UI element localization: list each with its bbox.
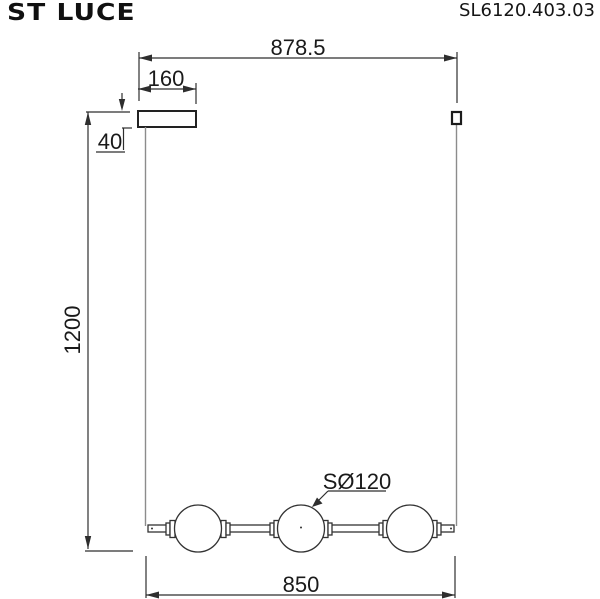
glass-globe-right: [387, 505, 434, 552]
spec-sheet-page: ST LUCE SL6120.403.03 878.5 160: [0, 0, 600, 599]
ceiling-attachment-right: [452, 112, 461, 124]
glass-globe-left: [175, 505, 222, 552]
brand-logo: ST LUCE: [7, 0, 136, 26]
bar-end-dot-left: [151, 528, 153, 530]
dim-label-canopy-width: 160: [148, 66, 185, 91]
dimension-drawing: 878.5 160 40 1200: [0, 0, 600, 599]
dim-label-bar-length: 850: [283, 572, 320, 597]
dim-label-total-width: 878.5: [270, 35, 325, 60]
ceiling-canopy: [138, 111, 196, 127]
dim-label-canopy-height: 40: [98, 129, 122, 154]
dim-label-shade-diameter: SØ120: [323, 469, 392, 494]
dim-label-total-height: 1200: [60, 306, 85, 355]
model-number: SL6120.403.03: [459, 0, 595, 21]
globe-center-dot: [300, 527, 302, 529]
bar-end-dot-right: [450, 528, 452, 530]
dim-total-height: [85, 112, 133, 551]
